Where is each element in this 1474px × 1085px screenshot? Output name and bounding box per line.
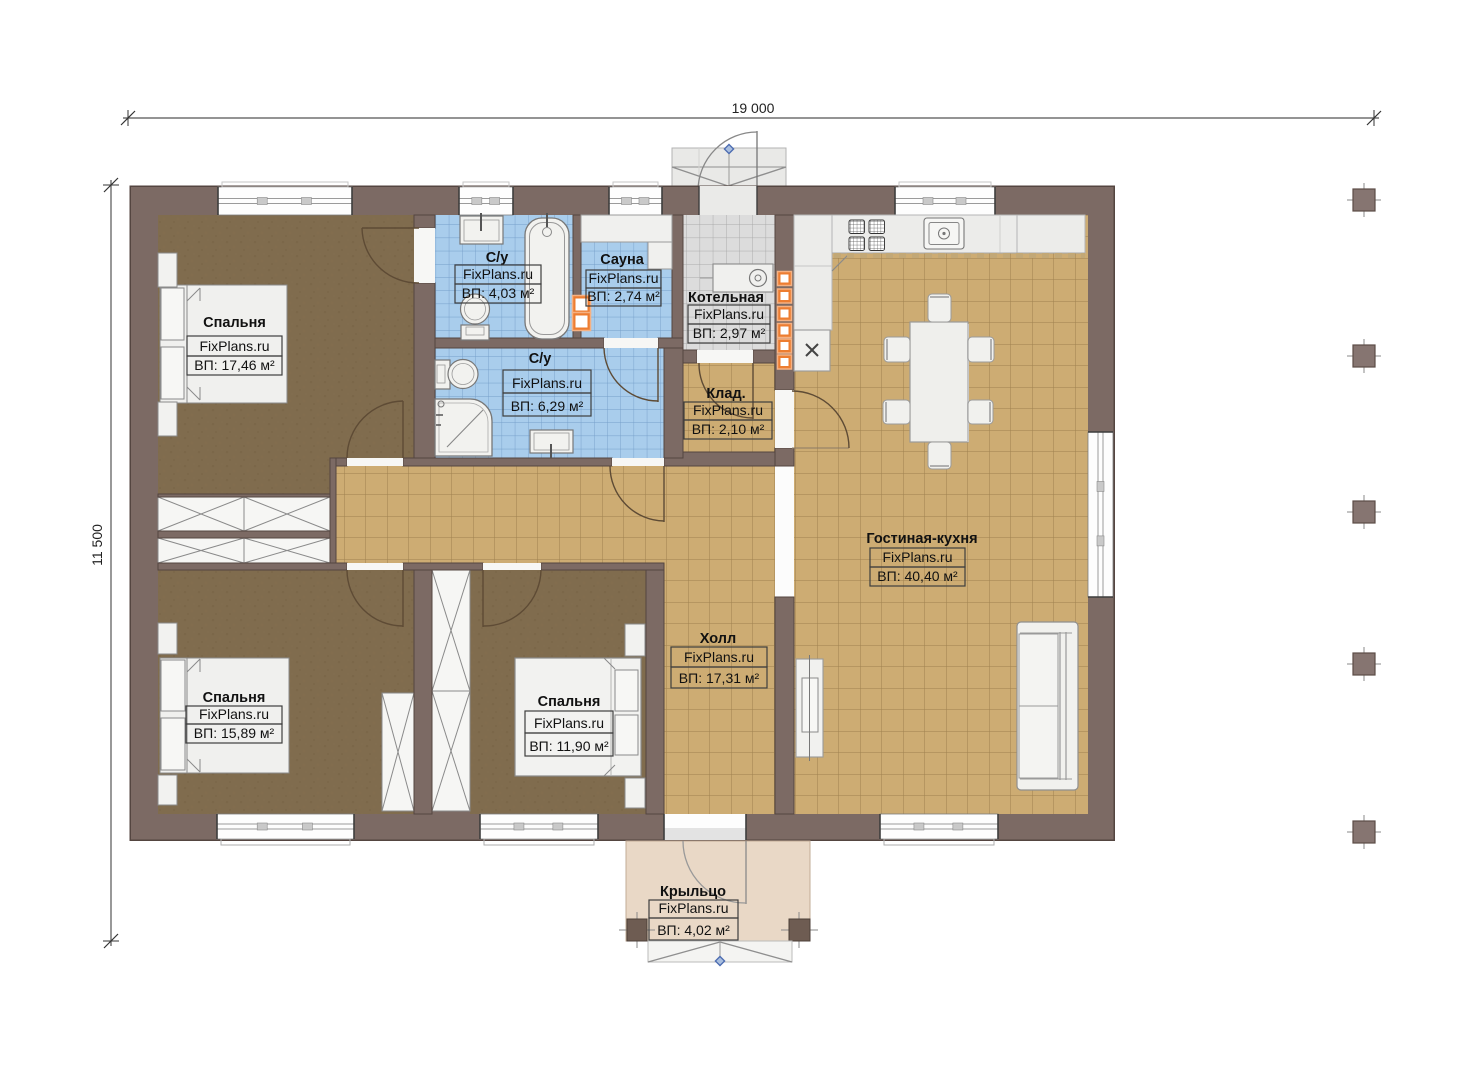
- svg-text:Спальня: Спальня: [538, 694, 601, 710]
- svg-text:FixPlans.ru: FixPlans.ru: [684, 649, 754, 665]
- svg-text:ВП: 4,02 м²: ВП: 4,02 м²: [657, 922, 730, 938]
- svg-text:Котельная: Котельная: [688, 290, 764, 306]
- svg-text:ВП: 4,03 м²: ВП: 4,03 м²: [462, 285, 535, 301]
- svg-text:ВП: 40,40 м²: ВП: 40,40 м²: [877, 568, 958, 584]
- svg-text:Гостиная-кухня: Гостиная-кухня: [866, 531, 977, 547]
- svg-text:ВП: 2,74 м²: ВП: 2,74 м²: [587, 288, 660, 304]
- svg-text:ВП: 2,97 м²: ВП: 2,97 м²: [693, 325, 766, 341]
- svg-text:FixPlans.ru: FixPlans.ru: [658, 900, 728, 916]
- svg-text:С/у: С/у: [486, 250, 509, 266]
- svg-text:ВП: 15,89 м²: ВП: 15,89 м²: [194, 725, 275, 741]
- svg-text:Спальня: Спальня: [203, 315, 266, 331]
- svg-text:FixPlans.ru: FixPlans.ru: [199, 706, 269, 722]
- svg-text:FixPlans.ru: FixPlans.ru: [534, 715, 604, 731]
- svg-text:FixPlans.ru: FixPlans.ru: [463, 266, 533, 282]
- svg-text:FixPlans.ru: FixPlans.ru: [693, 402, 763, 418]
- svg-text:Сауна: Сауна: [600, 252, 645, 268]
- svg-text:ВП: 17,46 м²: ВП: 17,46 м²: [194, 357, 275, 373]
- svg-text:Холл: Холл: [700, 631, 736, 647]
- svg-text:FixPlans.ru: FixPlans.ru: [694, 306, 764, 322]
- svg-text:19 000: 19 000: [732, 100, 775, 116]
- svg-text:Крыльцо: Крыльцо: [660, 884, 726, 900]
- svg-text:ВП: 6,29 м²: ВП: 6,29 м²: [511, 398, 584, 414]
- svg-text:FixPlans.ru: FixPlans.ru: [882, 549, 952, 565]
- svg-text:Спальня: Спальня: [203, 690, 266, 706]
- svg-text:Клад.: Клад.: [706, 386, 745, 402]
- svg-text:FixPlans.ru: FixPlans.ru: [512, 375, 582, 391]
- svg-text:FixPlans.ru: FixPlans.ru: [588, 270, 658, 286]
- svg-text:FixPlans.ru: FixPlans.ru: [199, 338, 269, 354]
- svg-text:11 500: 11 500: [89, 524, 105, 566]
- svg-text:ВП: 17,31 м²: ВП: 17,31 м²: [679, 670, 760, 686]
- svg-text:С/у: С/у: [529, 351, 552, 367]
- svg-text:ВП: 11,90 м²: ВП: 11,90 м²: [529, 738, 609, 754]
- svg-text:ВП: 2,10 м²: ВП: 2,10 м²: [692, 421, 765, 437]
